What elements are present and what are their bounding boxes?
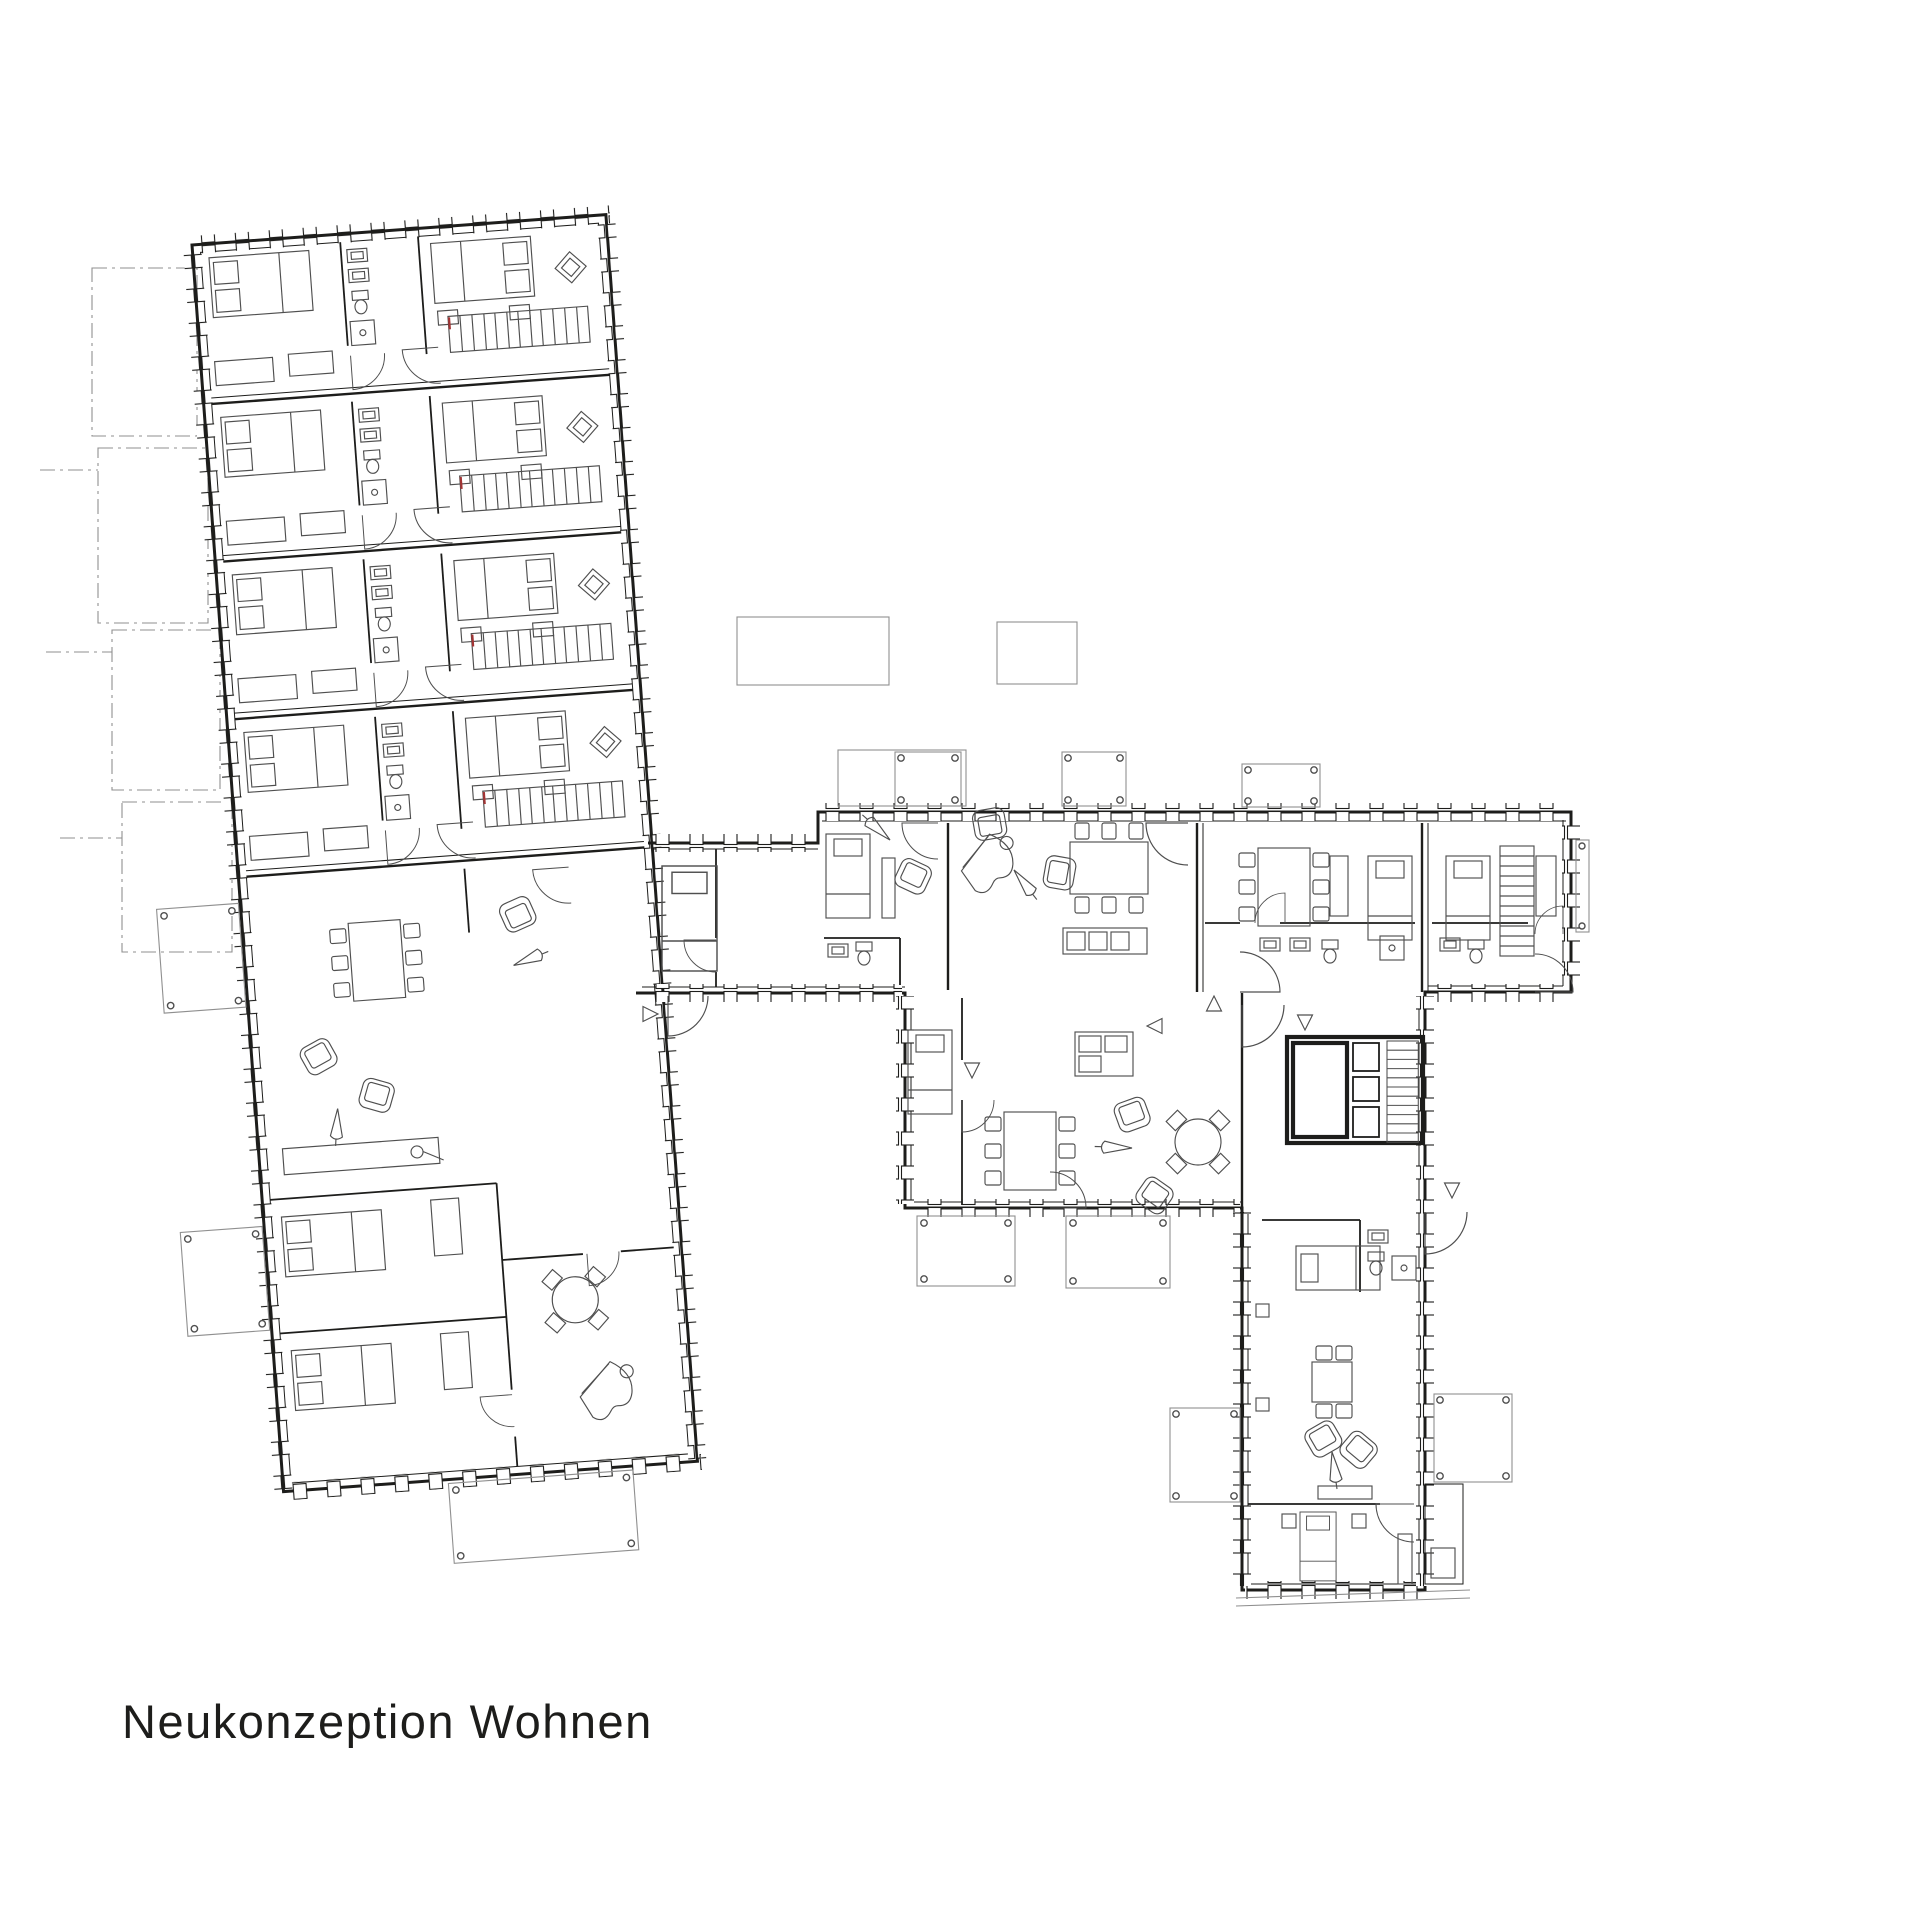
balcony xyxy=(1062,752,1126,806)
upper-floor-balcony xyxy=(122,802,232,952)
terrace-edge xyxy=(1236,1598,1470,1606)
dining-table xyxy=(329,918,424,1002)
tv-sideboard xyxy=(282,1137,443,1175)
single-bed xyxy=(826,834,870,918)
direction-triangle xyxy=(965,1063,980,1078)
armchair xyxy=(1042,854,1077,891)
kitchen-counter xyxy=(1063,928,1147,954)
staircase xyxy=(1387,1041,1418,1142)
dining-table xyxy=(1239,848,1329,926)
dining-table xyxy=(1070,823,1148,913)
single-bed xyxy=(1300,1512,1336,1581)
armchair xyxy=(357,1077,396,1115)
direction-triangle xyxy=(1147,1019,1162,1034)
unit-a xyxy=(826,810,938,965)
balcony xyxy=(1066,1216,1170,1288)
bathroom-sink xyxy=(828,944,848,957)
bathroom-sink xyxy=(1368,1230,1388,1243)
upper-floor-balcony xyxy=(92,268,197,436)
armchair xyxy=(297,1036,340,1078)
single-bed xyxy=(1368,856,1412,940)
toilet xyxy=(1368,1252,1384,1275)
single-bed xyxy=(662,866,717,971)
direction-triangle xyxy=(1298,1015,1313,1030)
floor-lamp xyxy=(329,1108,348,1147)
plan-sheet: Neukonzeption Wohnen xyxy=(0,0,1920,1920)
floor-lamp xyxy=(1012,865,1041,903)
door-swing xyxy=(1376,1504,1414,1542)
armchair xyxy=(1112,1095,1152,1134)
balconies xyxy=(737,617,1589,1502)
door-swing xyxy=(902,823,938,859)
armchair xyxy=(892,856,934,897)
large-apartment xyxy=(247,855,689,1483)
kitchen-counter xyxy=(1075,1032,1133,1076)
unit-b xyxy=(953,806,1188,954)
floor-plan xyxy=(0,0,1920,1920)
door-swing xyxy=(533,867,572,906)
upper-floor-balcony xyxy=(997,622,1077,684)
door-swing xyxy=(684,940,716,972)
round-table xyxy=(1166,1110,1230,1174)
apartment-unit-row xyxy=(218,384,605,559)
balcony xyxy=(1242,764,1320,807)
wardrobe xyxy=(440,1332,472,1390)
door-frame xyxy=(1256,1398,1269,1411)
floor-lamp xyxy=(1330,1452,1342,1489)
wardrobe xyxy=(1536,856,1556,916)
round-table xyxy=(541,1266,609,1334)
nightstand xyxy=(1282,1514,1296,1528)
north-wing xyxy=(108,205,713,1582)
door-swing xyxy=(1240,952,1280,992)
grand-piano xyxy=(573,1353,647,1423)
shower xyxy=(1392,1256,1416,1280)
direction-triangle xyxy=(1445,1183,1460,1198)
facade-mullions xyxy=(279,1452,702,1501)
door-swing xyxy=(480,1395,514,1429)
apartment-unit-row xyxy=(241,699,628,874)
living-protrusion xyxy=(908,996,1230,1217)
upper-floor-balcony xyxy=(737,617,889,685)
door-frame xyxy=(1256,1304,1269,1317)
apartment-unit-row xyxy=(230,541,617,716)
grand-piano xyxy=(953,825,1028,896)
armchair xyxy=(1302,1418,1345,1460)
plan-title: Neukonzeption Wohnen xyxy=(122,1694,653,1749)
sideboard xyxy=(1431,1548,1455,1578)
staircase xyxy=(1500,846,1534,956)
bathroom-sink xyxy=(1260,938,1280,951)
floor-lamp xyxy=(1094,1140,1133,1158)
single-bed xyxy=(1446,856,1490,940)
toilet xyxy=(1322,940,1338,963)
unit-divider-walls xyxy=(211,369,644,877)
south-wing xyxy=(1236,1005,1470,1606)
armchair xyxy=(1337,1428,1381,1472)
balcony xyxy=(1434,1394,1512,1482)
single-bed xyxy=(908,1030,952,1114)
floor-lamp xyxy=(511,947,550,968)
balcony xyxy=(1170,1408,1240,1502)
wardrobe xyxy=(1330,856,1348,916)
bathroom-sink xyxy=(1290,938,1310,951)
direction-triangle xyxy=(1207,996,1222,1011)
upper-floor-balcony xyxy=(112,630,220,790)
unit-d xyxy=(1440,846,1573,992)
door-swing xyxy=(1146,823,1188,865)
tv-sideboard xyxy=(1318,1486,1372,1499)
balcony xyxy=(917,1216,1015,1286)
toilet xyxy=(1468,940,1484,963)
single-bed xyxy=(1296,1246,1380,1290)
door-swing xyxy=(962,1100,994,1132)
elevator-core xyxy=(1287,1037,1423,1143)
door-swing xyxy=(1535,906,1563,934)
armchair xyxy=(497,894,538,934)
bed xyxy=(281,1210,385,1277)
bed xyxy=(291,1343,395,1410)
door-swing xyxy=(1255,893,1285,923)
balcony xyxy=(895,752,961,806)
nightstand xyxy=(1352,1514,1366,1528)
door-swing xyxy=(1242,1005,1284,1047)
unit-c xyxy=(1239,848,1412,992)
facade-mullions xyxy=(187,205,610,254)
wardrobe xyxy=(431,1198,463,1256)
apartment-unit-row xyxy=(207,224,594,399)
upper-floor-balcony xyxy=(98,448,208,623)
dining-table xyxy=(1312,1346,1352,1418)
dining-table xyxy=(985,1112,1075,1190)
tv-sideboard xyxy=(882,858,895,918)
main-wing xyxy=(636,617,1589,1606)
toilet xyxy=(856,942,872,965)
